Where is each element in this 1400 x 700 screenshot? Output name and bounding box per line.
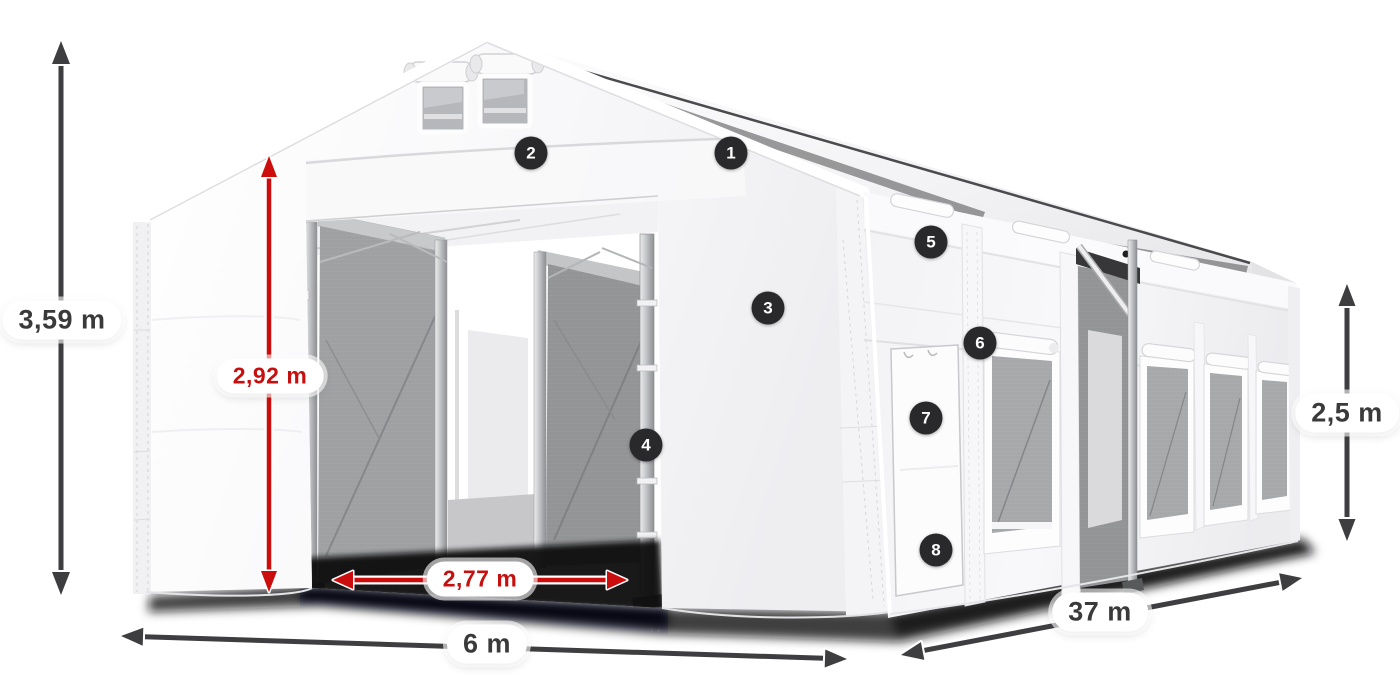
dimension-label-inner-door-width: 2,77 m: [427, 562, 534, 597]
dimension-label-total-height: 3,59 m: [2, 301, 121, 340]
tent-dimension-diagram: 3,59 m 2,92 m 2,77 m 6 m 37 m 2,5 m 1 2 …: [0, 0, 1400, 700]
callout-marker-1: 1: [715, 137, 748, 170]
callout-marker-8: 8: [920, 534, 953, 567]
callout-marker-4: 4: [630, 429, 663, 462]
callout-marker-5: 5: [915, 226, 948, 259]
side-window-2: [1140, 343, 1197, 538]
callout-marker-6: 6: [964, 327, 997, 360]
dimension-label-length: 37 m: [1052, 593, 1148, 632]
callout-marker-2: 2: [515, 137, 548, 170]
callout-marker-3: 3: [752, 292, 785, 325]
callout-marker-7: 7: [910, 402, 943, 435]
front-opening-interior: [298, 196, 666, 616]
open-side-doorway: [1076, 240, 1144, 594]
dimension-label-inner-door-height: 2,92 m: [217, 359, 324, 394]
tent-illustration: [0, 0, 1400, 700]
side-window-3: [1204, 352, 1252, 526]
dimension-label-side-height: 2,5 m: [1295, 394, 1399, 433]
dimension-label-width: 6 m: [447, 625, 527, 664]
side-window-1: [984, 332, 1060, 554]
